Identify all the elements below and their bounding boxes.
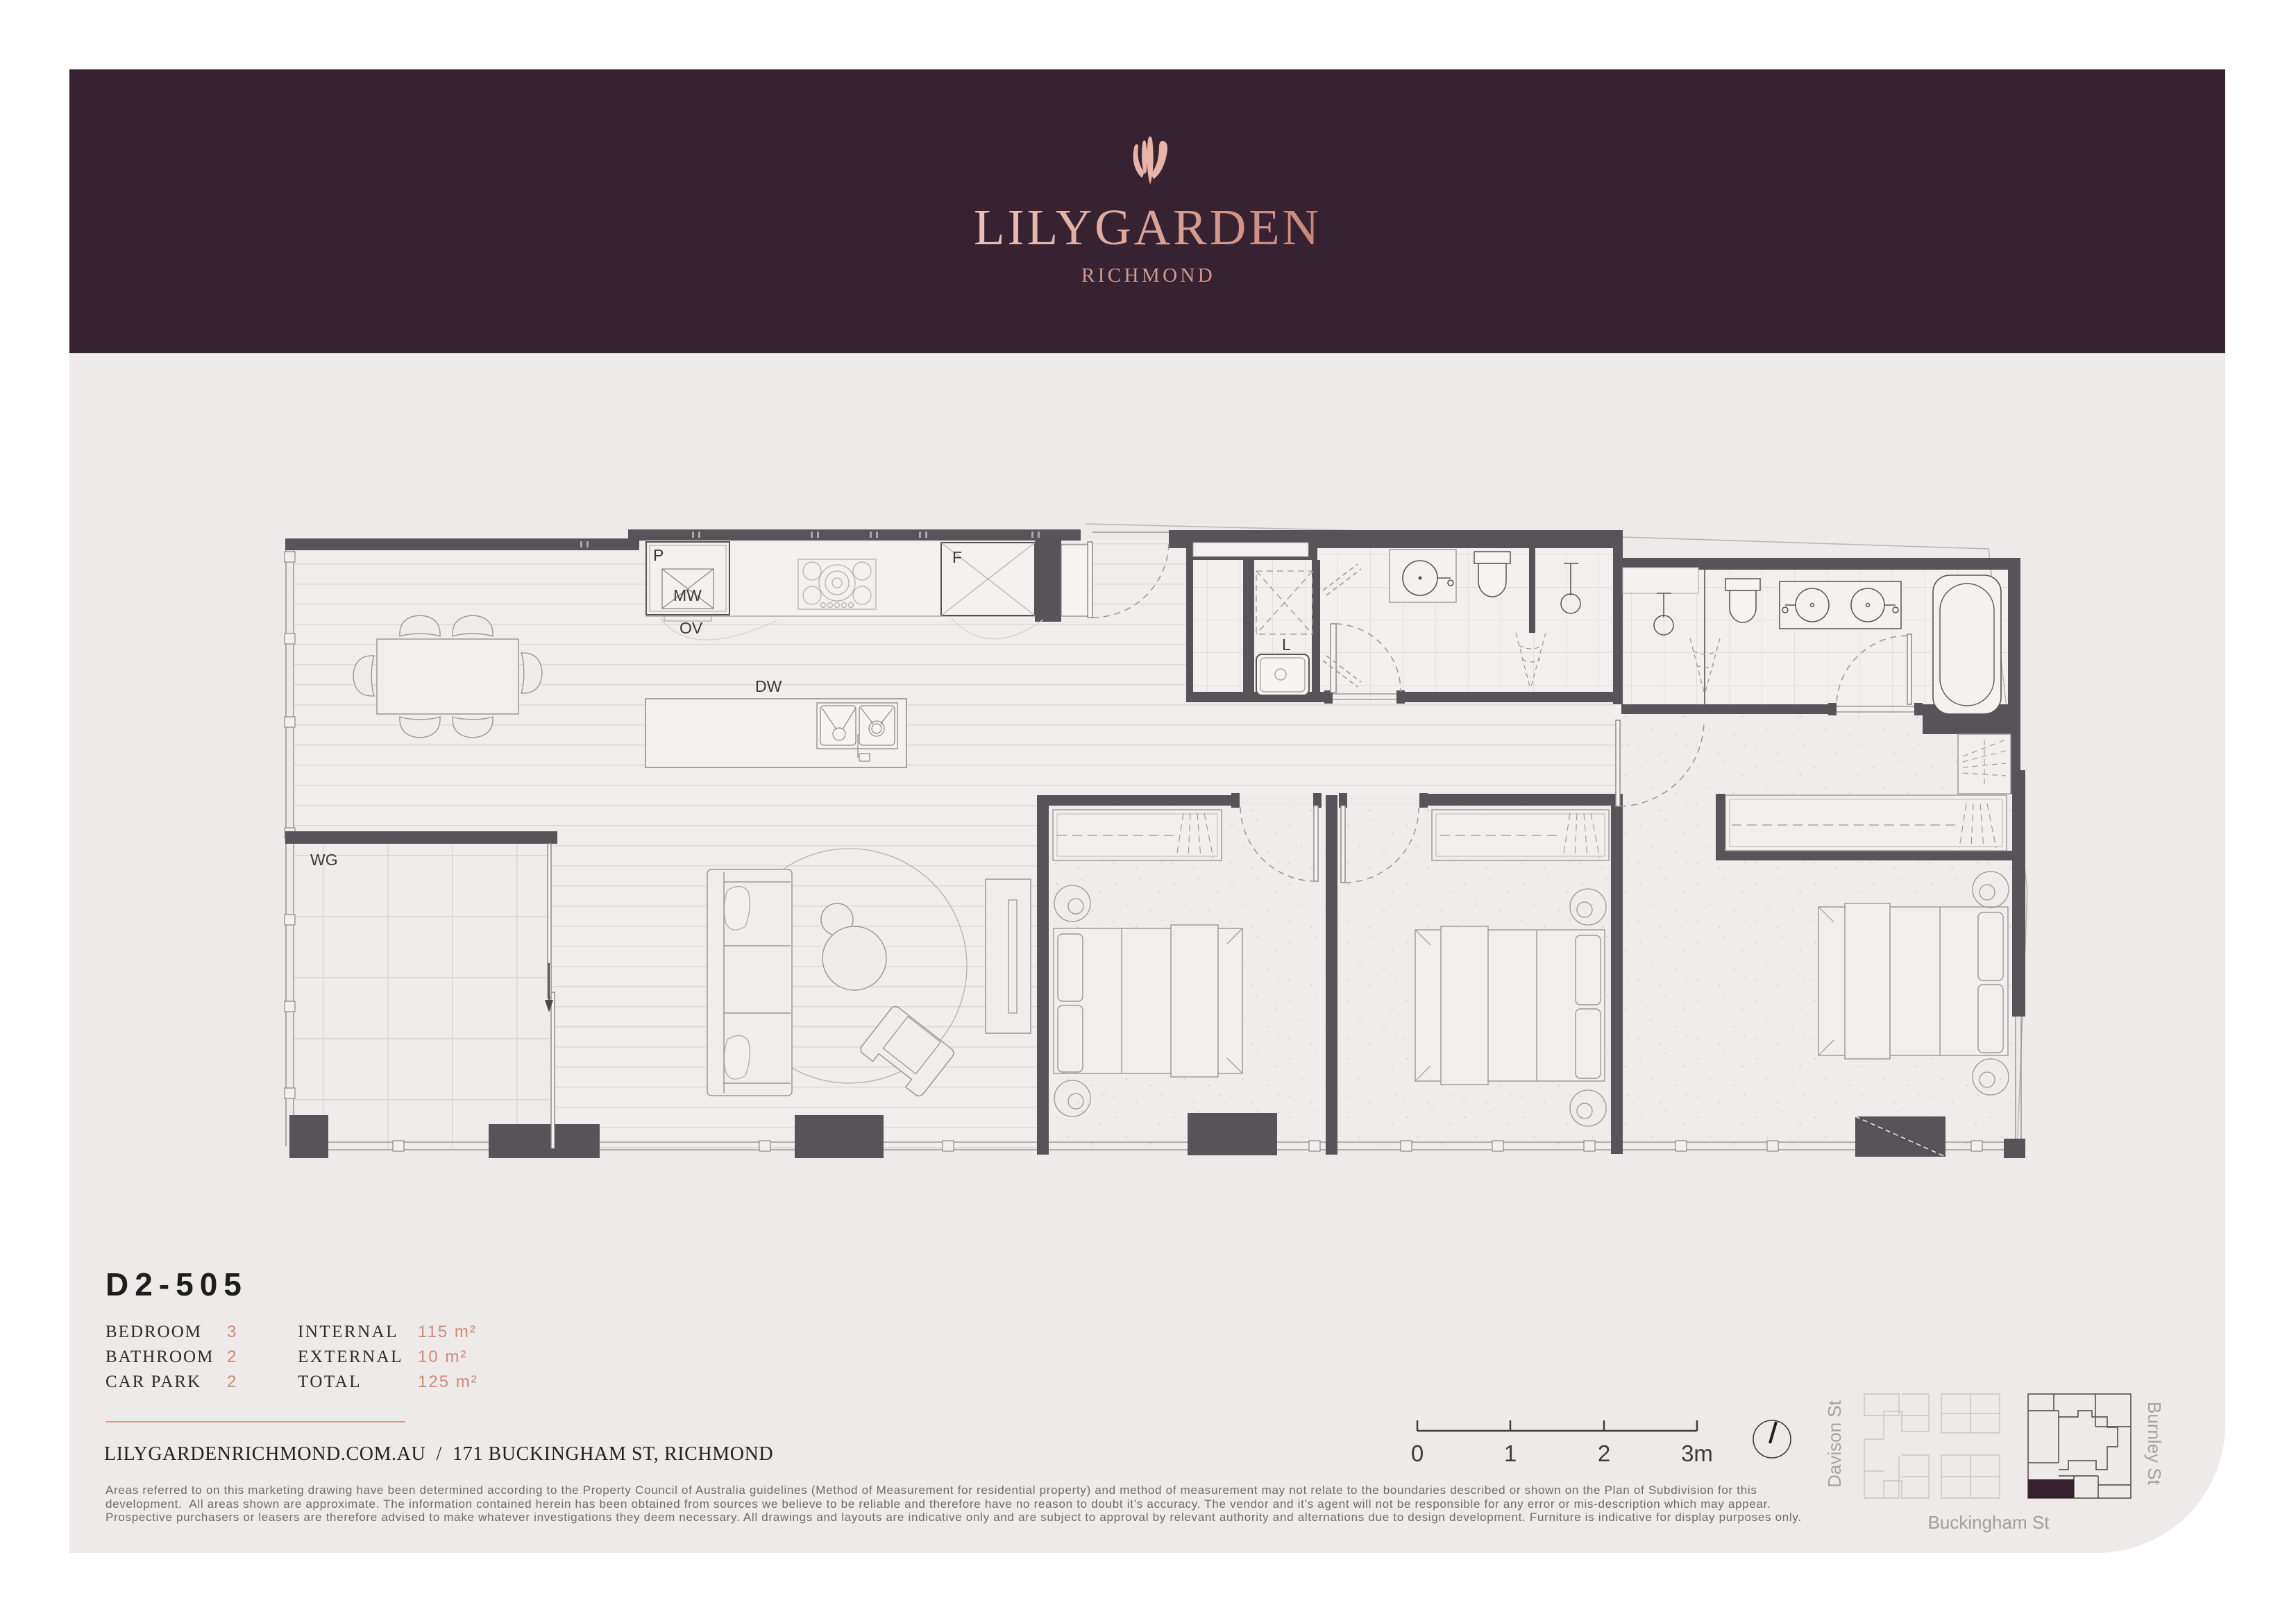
svg-text:2: 2 [1598,1441,1610,1466]
svg-text:Davison St: Davison St [1824,1400,1845,1487]
svg-text:MW: MW [673,586,702,604]
svg-text:0: 0 [1411,1441,1424,1466]
svg-text:RICHMOND: RICHMOND [1081,264,1215,287]
svg-text:F: F [952,548,962,566]
svg-text:3m: 3m [1681,1441,1713,1466]
svg-text:P: P [653,546,664,564]
svg-text:Buckingham St: Buckingham St [1928,1512,2050,1533]
svg-text:L: L [1282,636,1291,654]
svg-text:1: 1 [1504,1441,1517,1466]
svg-text:Burnley St: Burnley St [2144,1402,2165,1486]
svg-text:LILYGARDEN: LILYGARDEN [974,199,1322,255]
svg-text:WG: WG [310,851,338,869]
svg-text:DW: DW [755,677,782,695]
svg-text:OV: OV [679,619,703,637]
